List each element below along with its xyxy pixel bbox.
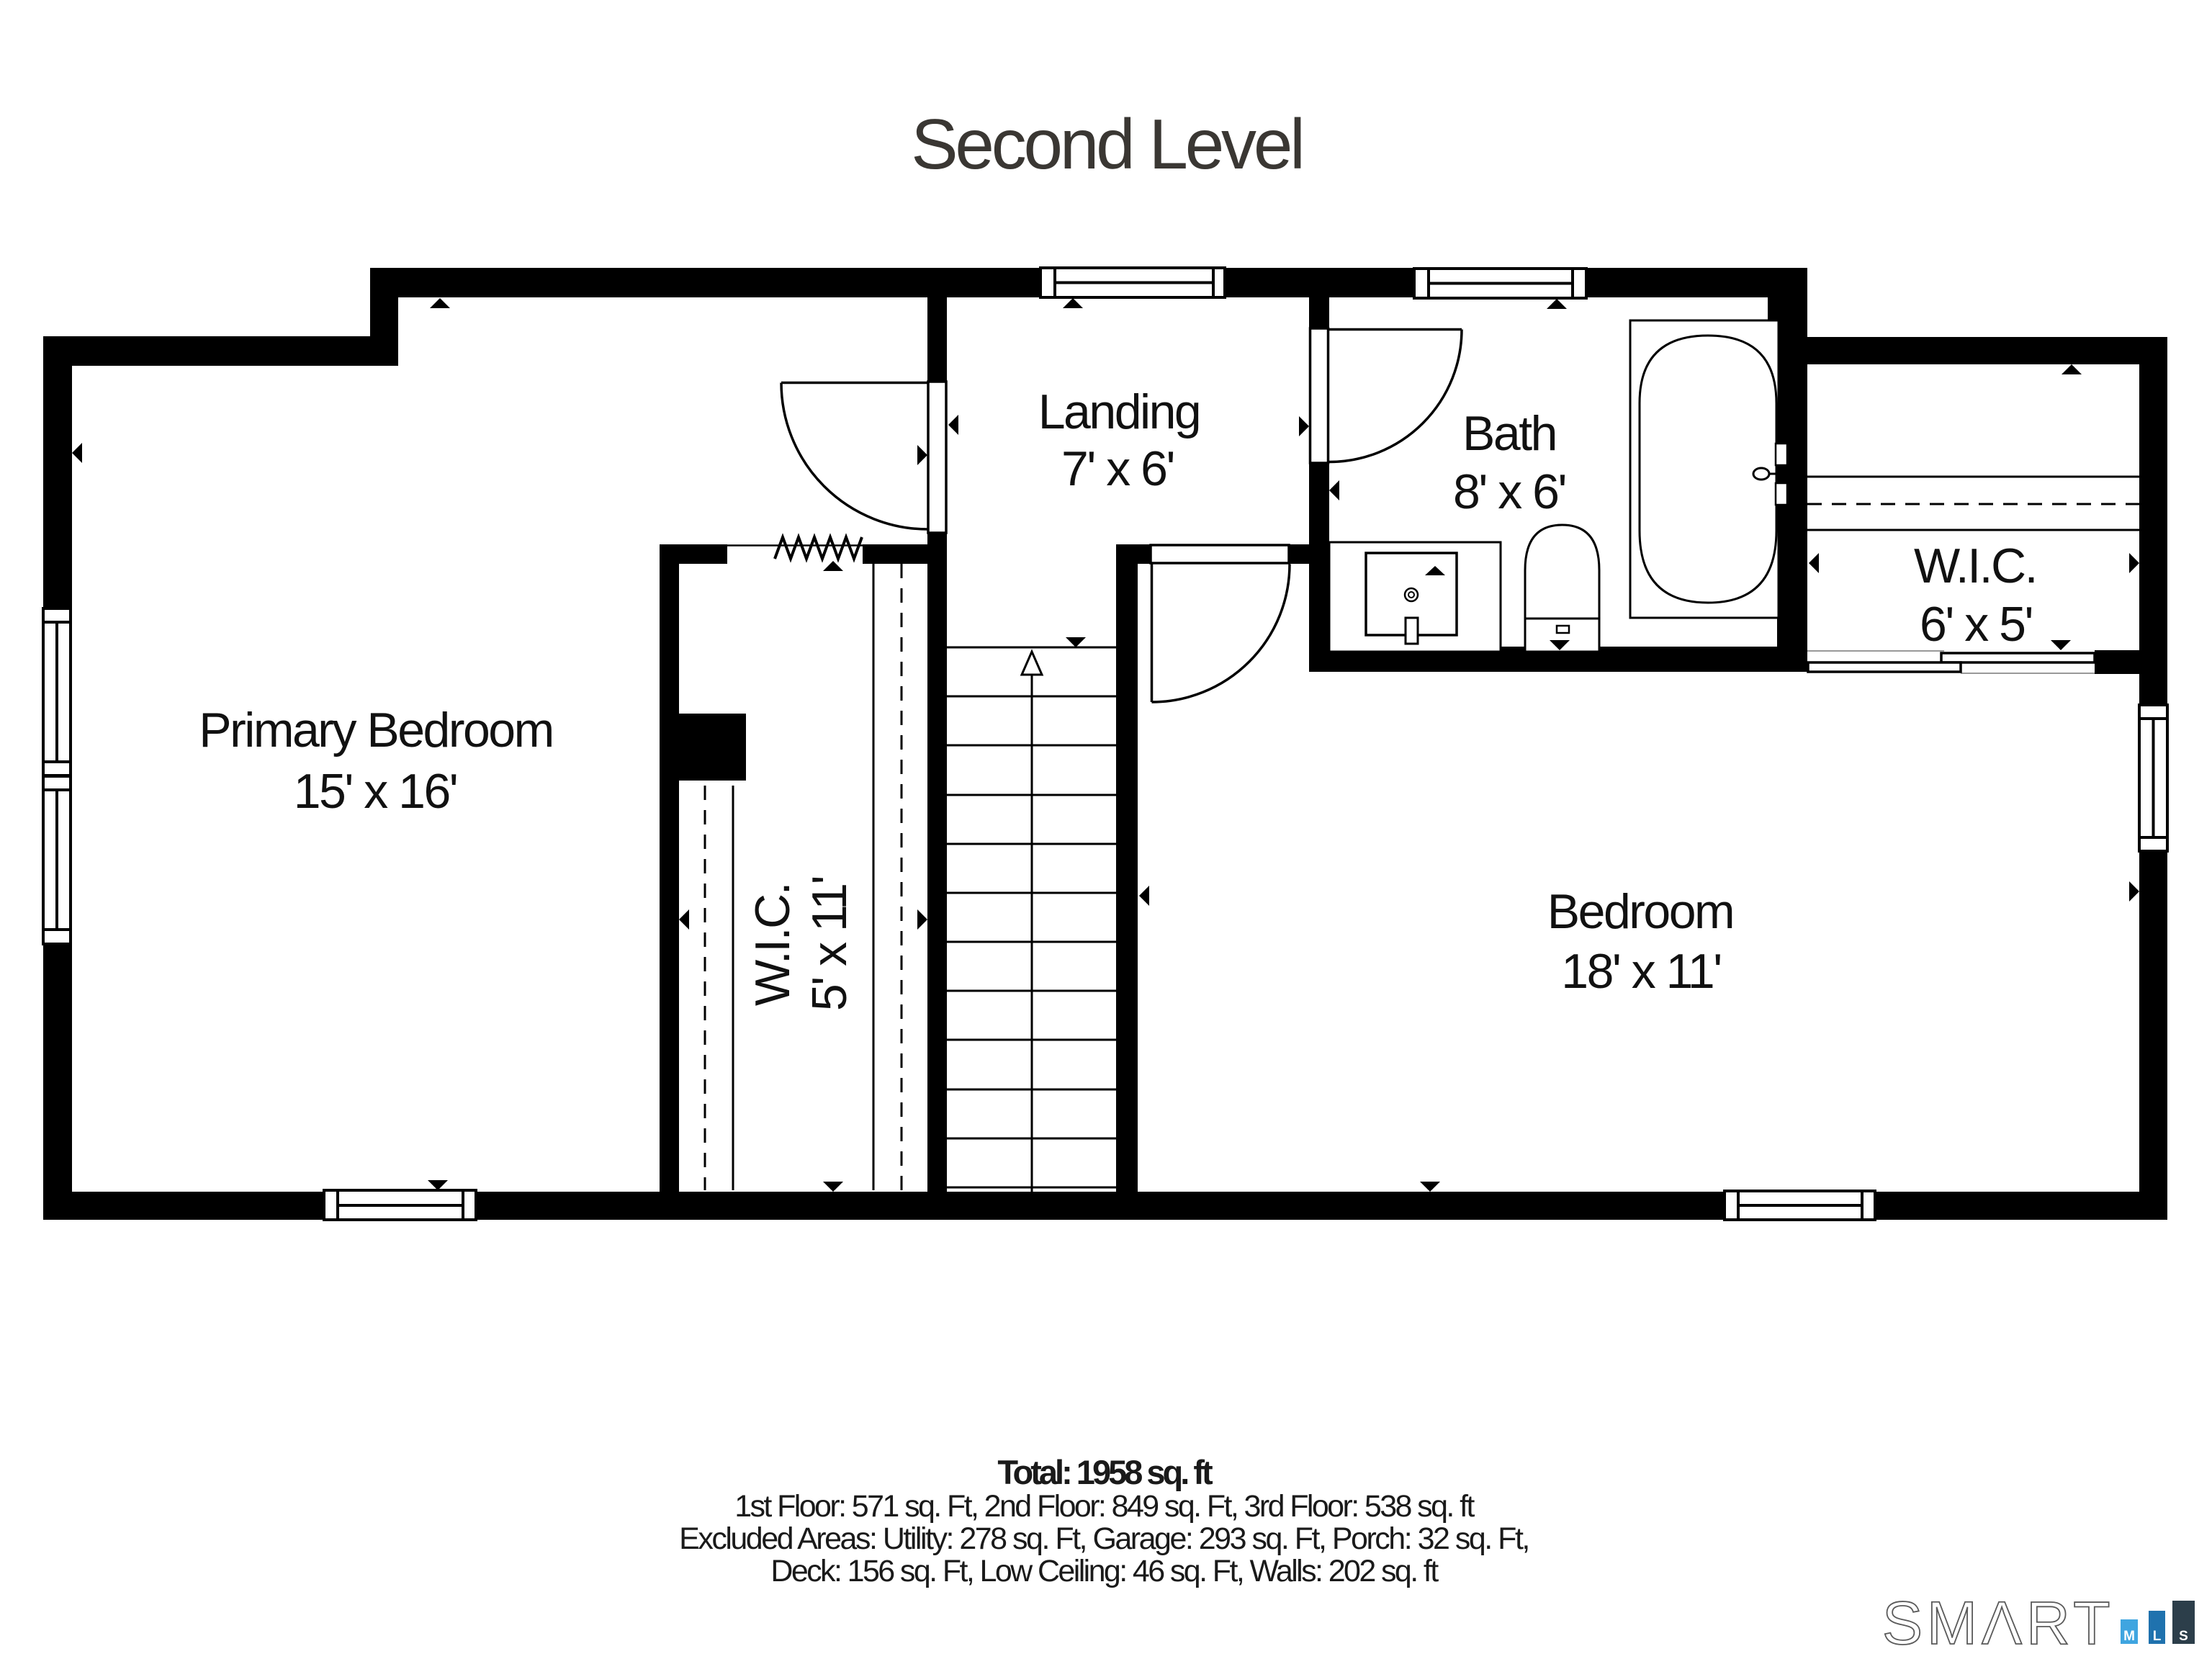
svg-text:Landing: Landing — [1038, 385, 1200, 439]
svg-text:Primary Bedroom: Primary Bedroom — [199, 703, 553, 757]
svg-text:Second Level: Second Level — [911, 104, 1303, 184]
svg-text:5' x 11': 5' x 11' — [802, 877, 857, 1011]
svg-text:M: M — [2123, 1629, 2135, 1644]
svg-text:Bath: Bath — [1462, 406, 1556, 461]
svg-text:6' x 5': 6' x 5' — [1920, 597, 2032, 652]
svg-text:15' x 16': 15' x 16' — [294, 764, 457, 819]
svg-text:Total: 1958 sq. ft: Total: 1958 sq. ft — [997, 1453, 1213, 1491]
svg-text:S: S — [2179, 1629, 2188, 1644]
svg-text:8' x 6': 8' x 6' — [1453, 464, 1565, 519]
svg-text:Deck: 156 sq. Ft, Low Ceiling:: Deck: 156 sq. Ft, Low Ceiling: 46 sq. Ft… — [770, 1554, 1439, 1588]
svg-text:1st Floor: 571 sq. Ft, 2nd Flo: 1st Floor: 571 sq. Ft, 2nd Floor: 849 sq… — [734, 1489, 1475, 1524]
svg-text:18' x 11': 18' x 11' — [1561, 944, 1720, 999]
svg-text:Excluded Areas: Utility: 278 s: Excluded Areas: Utility: 278 sq. Ft, Gar… — [679, 1521, 1529, 1556]
svg-text:SMΛRT: SMΛRT — [1882, 1589, 2115, 1657]
svg-text:Bedroom: Bedroom — [1547, 884, 1733, 939]
svg-text:W.I.C.: W.I.C. — [1914, 539, 2036, 593]
svg-text:W.I.C.: W.I.C. — [745, 884, 800, 1006]
svg-text:L: L — [2153, 1629, 2162, 1644]
svg-text:7' x 6': 7' x 6' — [1061, 441, 1174, 496]
